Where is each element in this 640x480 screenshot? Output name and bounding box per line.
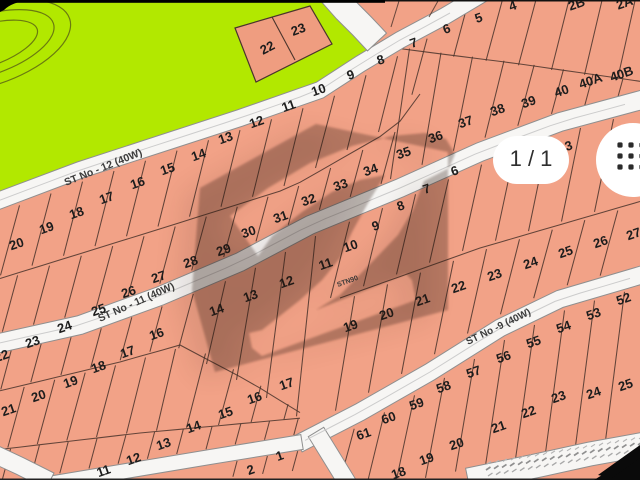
svg-text:1 / 1: 1 / 1 [510, 146, 553, 171]
